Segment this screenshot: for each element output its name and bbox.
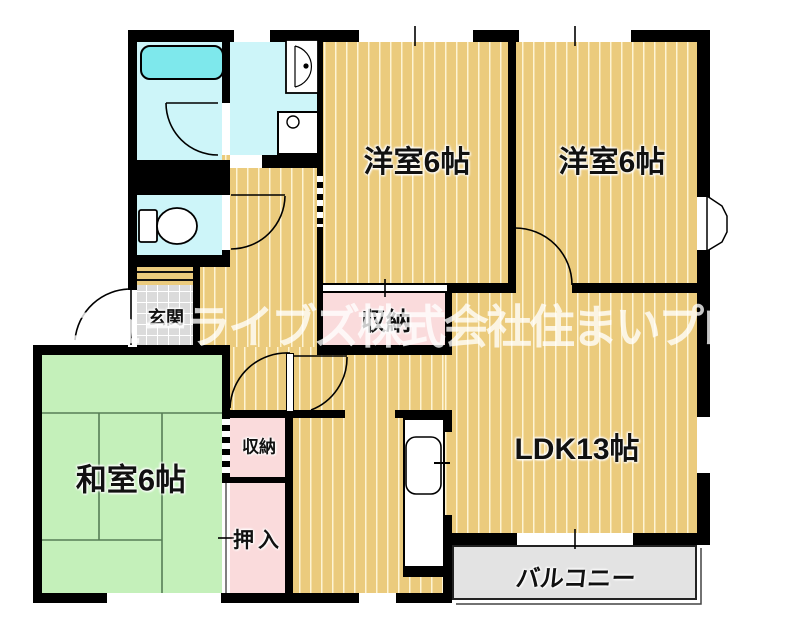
door-swing-arc: [75, 103, 572, 410]
washbasin-icon: [286, 40, 318, 93]
room-label-washitsu: 和室6帖: [76, 455, 186, 500]
bathtub-icon: [141, 46, 223, 79]
watermark-text: ニューライブズ株式会社住まいプロ: [56, 291, 744, 357]
room-label-oshiire: 押入: [233, 524, 283, 554]
room-label-yoshitsu-right: 洋室6帖: [559, 137, 666, 181]
bay-window: [707, 196, 727, 251]
tatami-grid-lines: [42, 413, 222, 593]
room-label-ldk: LDK13帖: [514, 424, 639, 468]
room-label-yoshitsu-left: 洋室6帖: [364, 137, 471, 181]
room-label-closet-small: 収納: [242, 433, 276, 458]
washing-machine-icon: [278, 112, 318, 154]
room-label-balcony: バルコニー: [514, 559, 637, 594]
toilet-icon: [139, 208, 197, 244]
floor-plan: 洋室6帖 洋室6帖 和室6帖 LDK13帖 玄関 バルコニー 収納 収納 押入 …: [0, 0, 800, 640]
kitchen-sink-icon: [406, 437, 450, 494]
